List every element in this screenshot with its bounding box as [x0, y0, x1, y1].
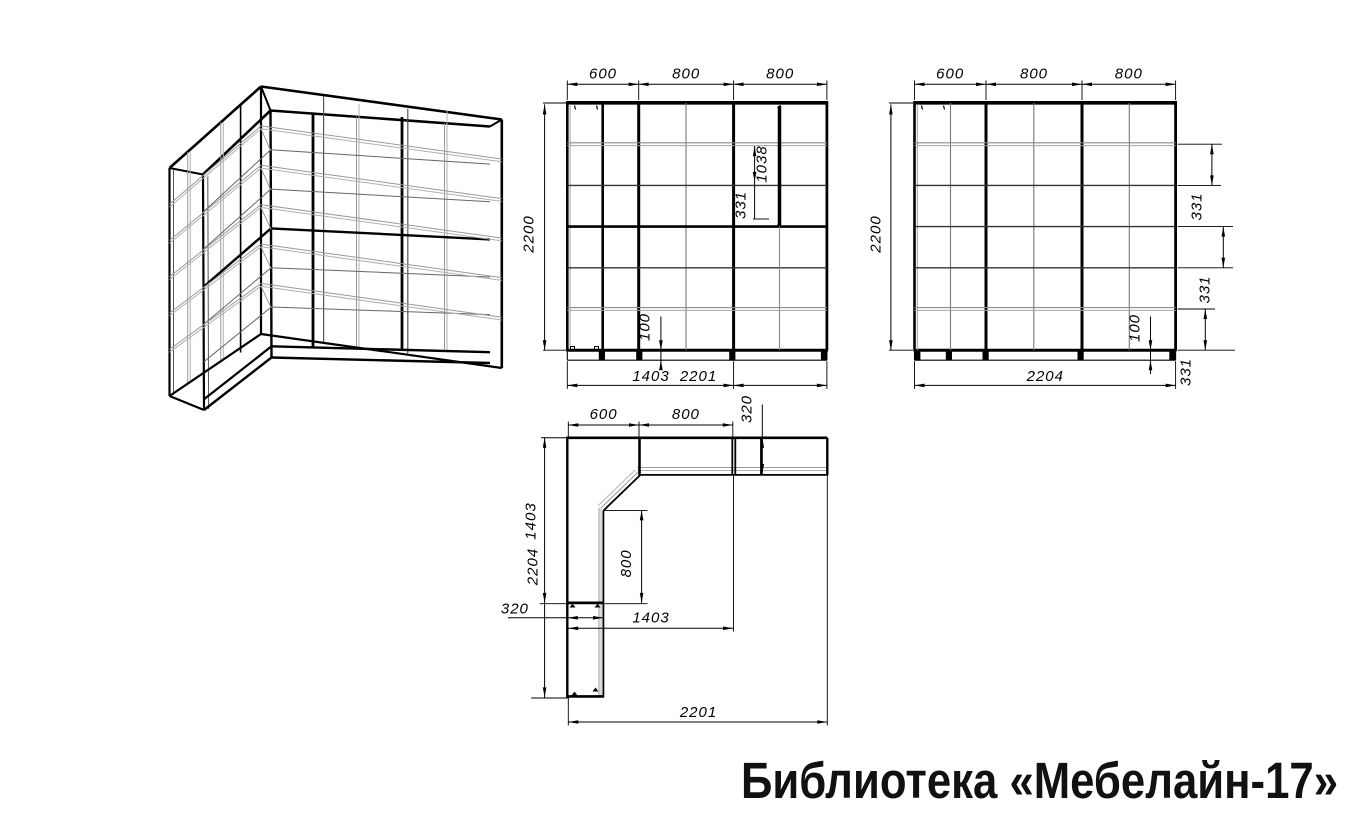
svg-text:2200: 2200 — [868, 215, 885, 253]
svg-text:320: 320 — [501, 601, 529, 618]
svg-text:800: 800 — [1115, 66, 1143, 83]
svg-text:800: 800 — [766, 66, 794, 83]
svg-text:800: 800 — [672, 406, 700, 423]
svg-text:600: 600 — [590, 406, 618, 423]
svg-text:2204: 2204 — [525, 548, 542, 586]
svg-text:2201: 2201 — [679, 368, 717, 385]
svg-text:2204: 2204 — [1026, 368, 1064, 385]
svg-text:800: 800 — [618, 549, 635, 577]
svg-text:1403: 1403 — [523, 502, 540, 539]
svg-text:320: 320 — [739, 395, 756, 423]
svg-text:800: 800 — [672, 66, 700, 83]
svg-text:Библиотека «Мебелайн-17»: Библиотека «Мебелайн-17» — [741, 752, 1338, 809]
svg-text:1403: 1403 — [632, 368, 669, 385]
svg-text:600: 600 — [936, 66, 964, 83]
svg-text:331: 331 — [1197, 275, 1214, 303]
svg-text:100: 100 — [1127, 314, 1144, 342]
svg-text:1403: 1403 — [632, 610, 669, 627]
svg-text:1038: 1038 — [754, 145, 771, 182]
svg-text:2201: 2201 — [679, 704, 717, 721]
svg-text:600: 600 — [589, 66, 617, 83]
svg-text:331: 331 — [733, 191, 750, 219]
svg-text:100: 100 — [637, 313, 654, 341]
svg-text:800: 800 — [1020, 66, 1048, 83]
svg-text:331: 331 — [1178, 358, 1195, 386]
svg-text:331: 331 — [1189, 192, 1206, 220]
svg-text:2200: 2200 — [521, 215, 538, 253]
